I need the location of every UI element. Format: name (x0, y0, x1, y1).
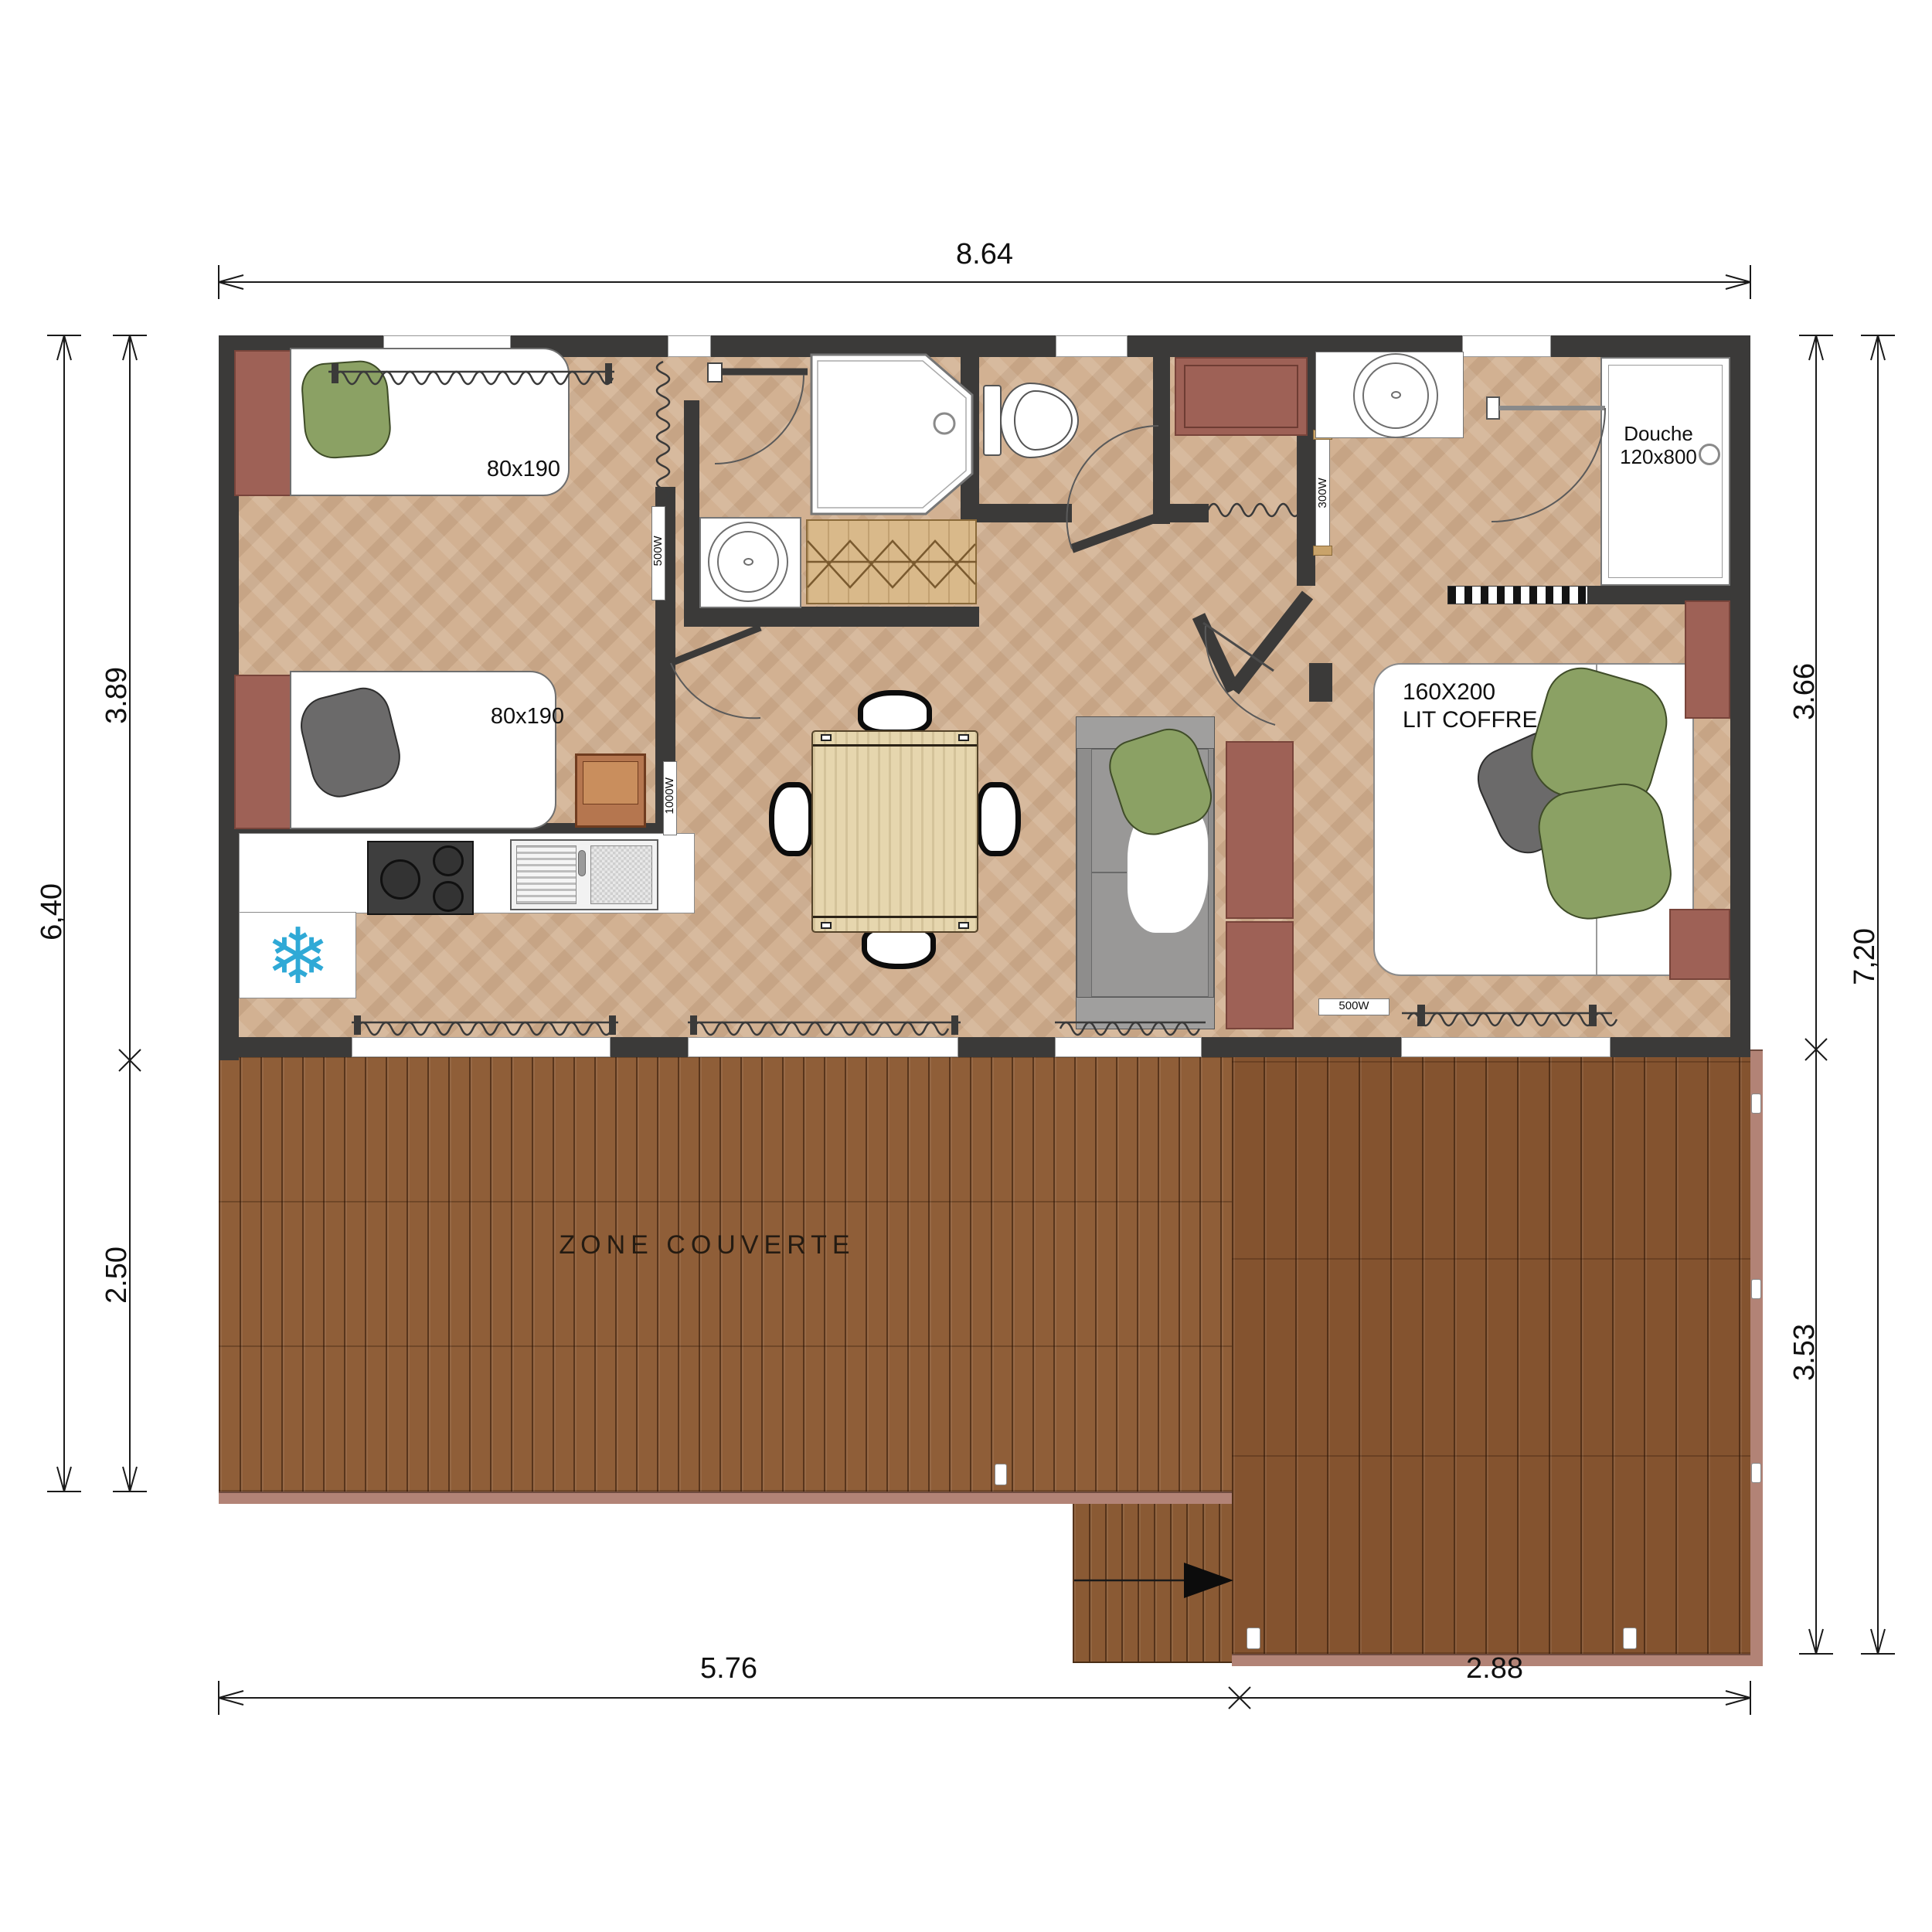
floor-plan: ZONE COUVERTE 80x190 80x190 ❄ (0, 0, 1932, 1932)
curtain-entry (1208, 504, 1301, 516)
wardrobe-shelf-lines (806, 541, 977, 587)
dimension-lines (47, 265, 1895, 1715)
curtain-bedroom1-doorway (657, 362, 669, 501)
dim-right-inner-top: 3.66 (1790, 614, 1821, 769)
dim-left-outer: 6,40 (37, 835, 68, 989)
dim-bottom-left: 5.76 (651, 1654, 806, 1685)
shower1-outline (811, 355, 972, 514)
curtain-living-window (688, 1015, 961, 1035)
dim-left-inner-top: 3.89 (102, 618, 133, 773)
shower2-door (1487, 397, 1605, 522)
wc-door (1066, 426, 1158, 549)
curtain-sofa-window (1055, 1022, 1206, 1035)
dim-right-outer: 7,20 (1850, 879, 1881, 1034)
plan-linework (0, 0, 1932, 1932)
hall-living-door (671, 628, 760, 718)
dim-bottom-right: 2.88 (1417, 1654, 1572, 1685)
dim-top: 8.64 (907, 240, 1062, 270)
dim-left-inner-bottom: 2.50 (102, 1198, 133, 1352)
bathroom1-door (708, 363, 808, 464)
curtain-bedroom1-window (328, 363, 614, 384)
curtain-bedroom2-window (1402, 1005, 1617, 1026)
dim-right-inner-bottom: 3.53 (1790, 1275, 1821, 1430)
curtain-kitchen-window (352, 1015, 618, 1035)
stairs-direction-arrow-icon (1074, 1563, 1233, 1598)
